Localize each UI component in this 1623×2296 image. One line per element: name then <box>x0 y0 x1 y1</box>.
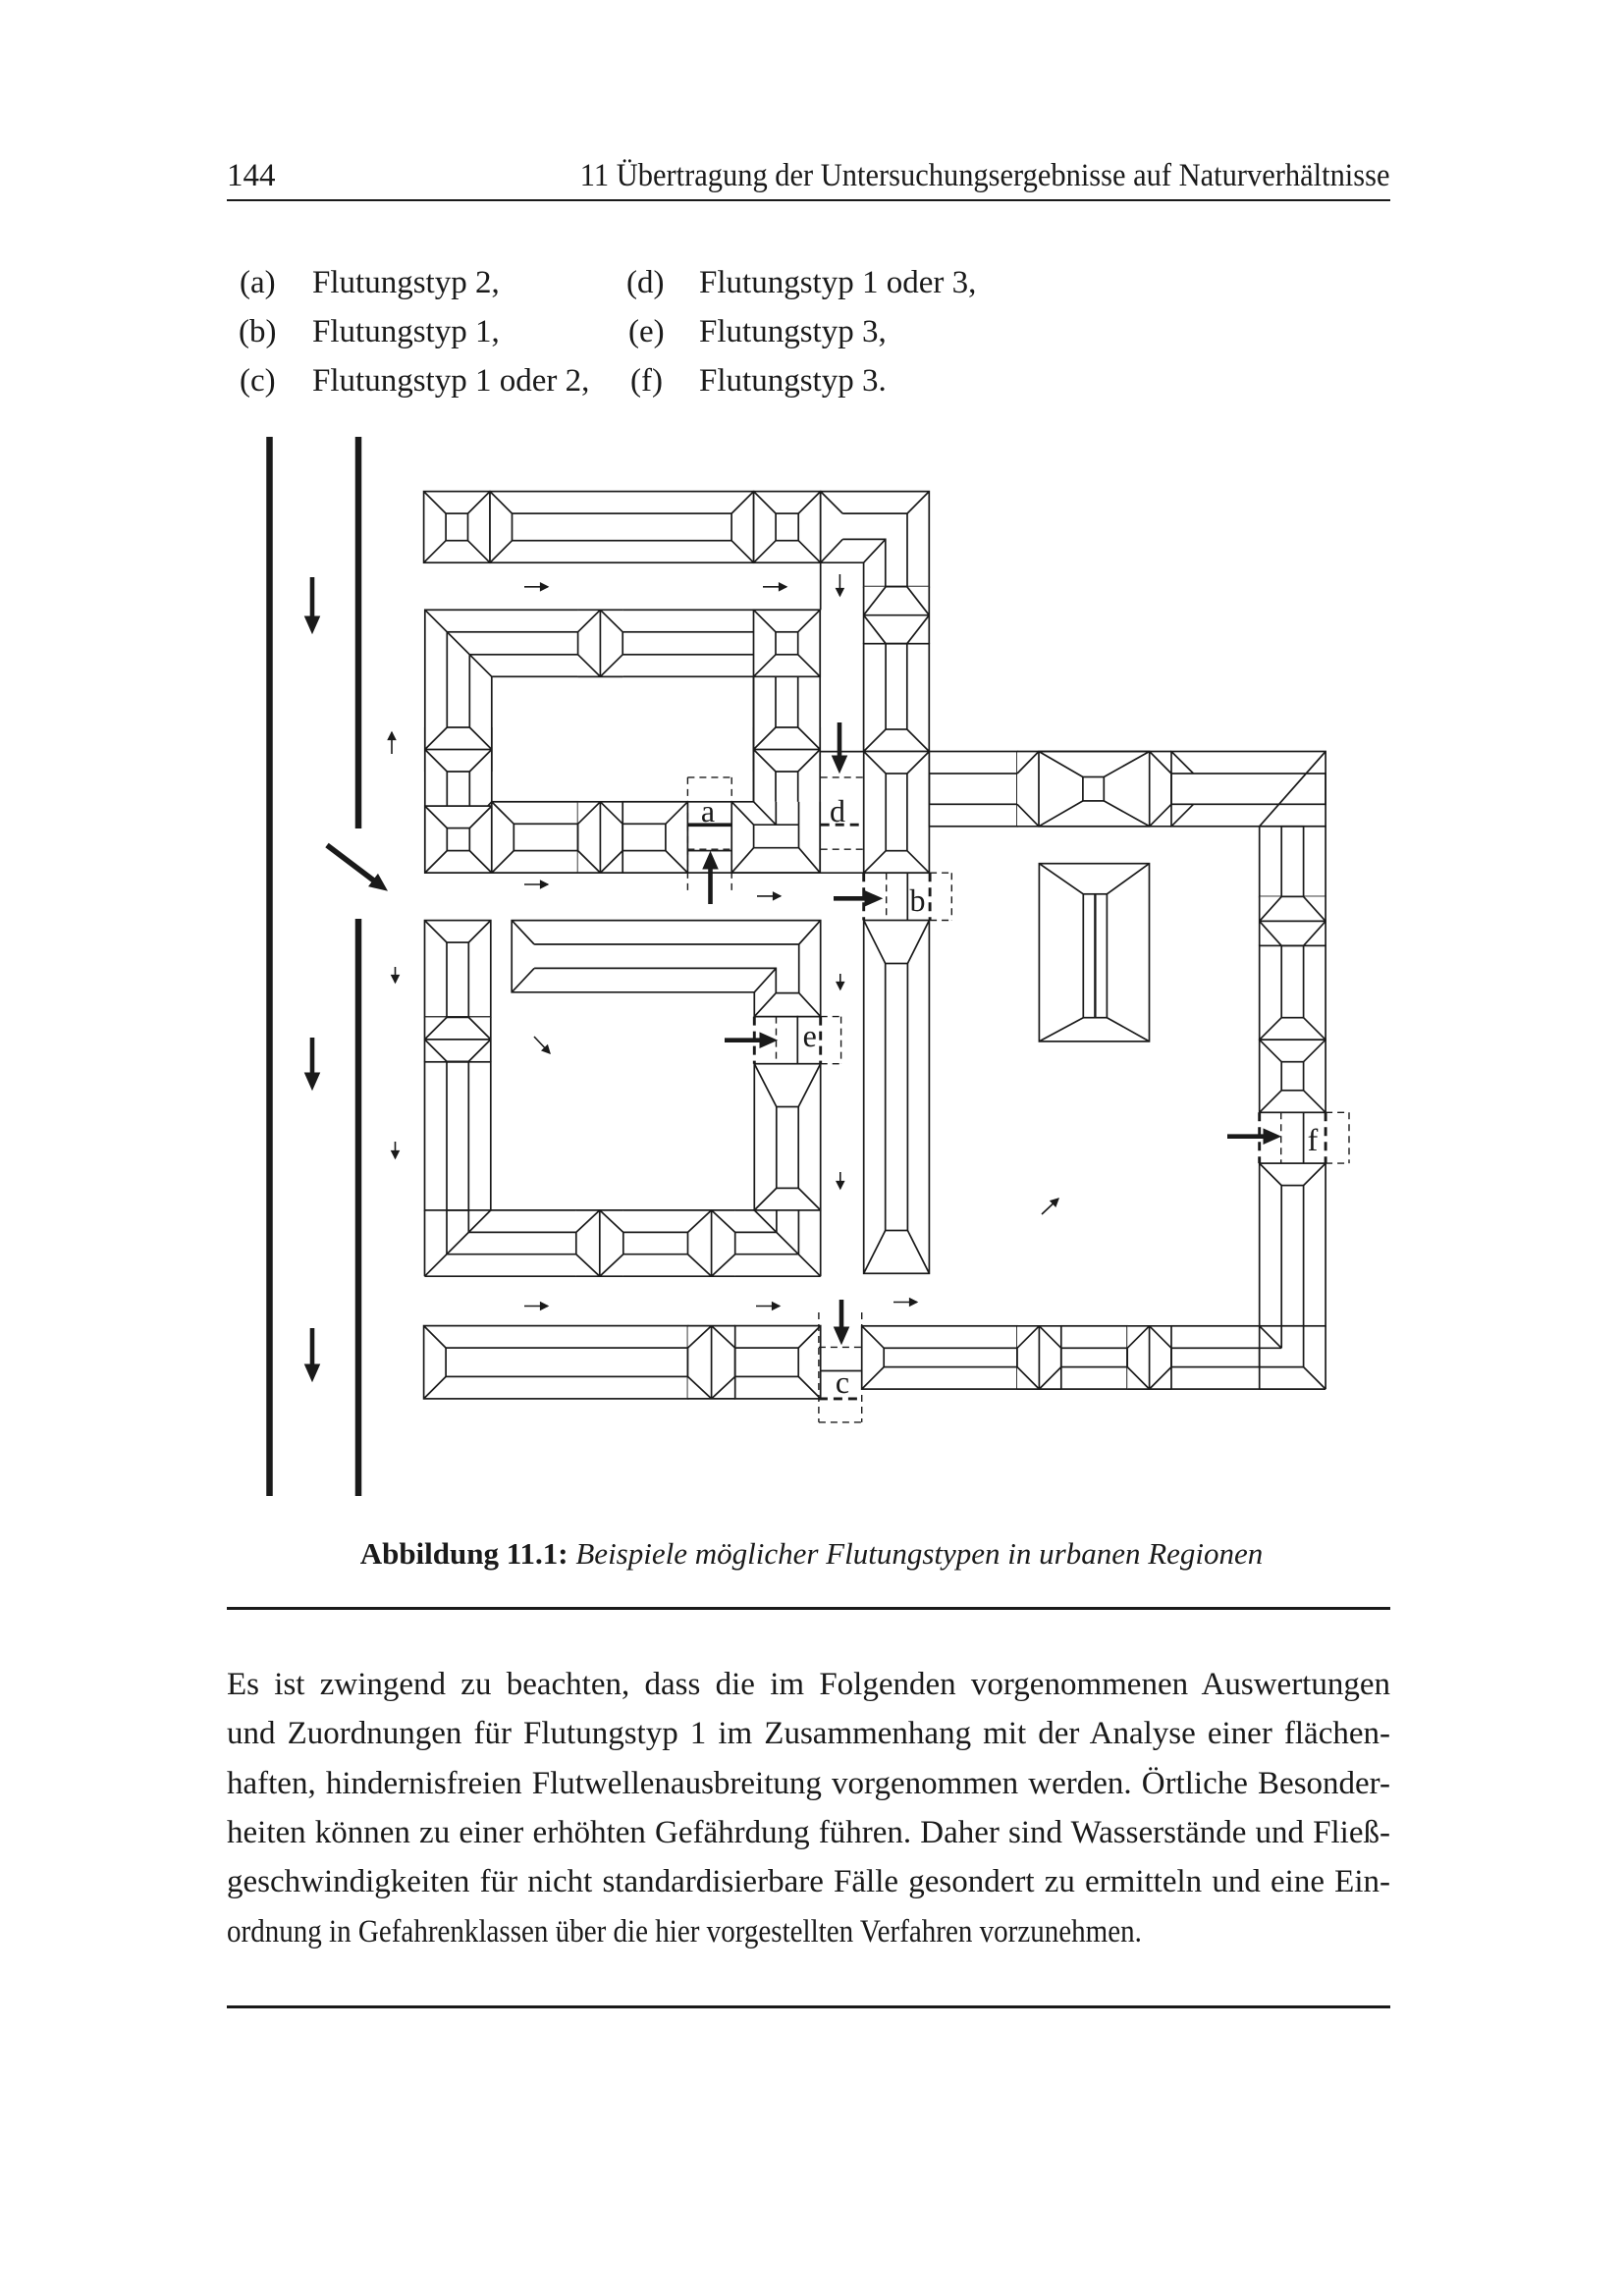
svg-text:a: a <box>701 793 715 828</box>
svg-text:e: e <box>803 1018 817 1053</box>
svg-text:f: f <box>1308 1122 1319 1157</box>
svg-text:b: b <box>910 882 926 918</box>
svg-text:d: d <box>830 793 845 828</box>
svg-text:c: c <box>836 1364 849 1400</box>
